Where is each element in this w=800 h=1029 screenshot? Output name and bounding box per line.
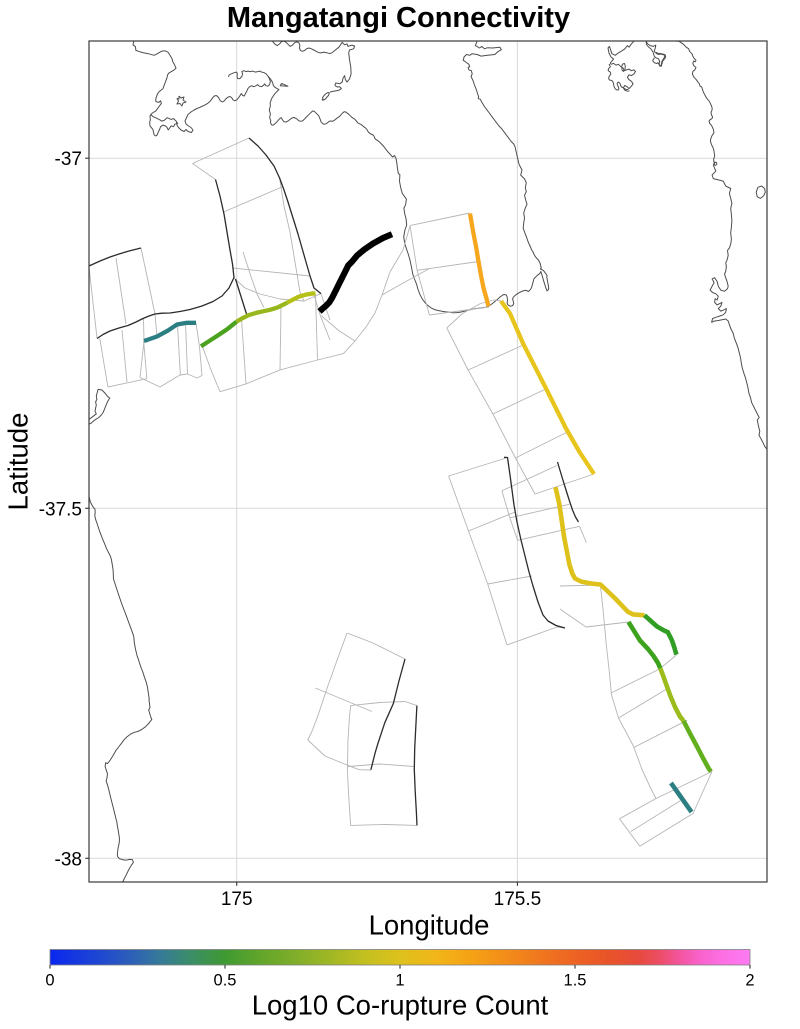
- svg-text:0: 0: [45, 972, 54, 990]
- svg-text:0.5: 0.5: [214, 972, 237, 990]
- svg-text:-38: -38: [55, 849, 82, 870]
- svg-text:-37.5: -37.5: [39, 499, 82, 520]
- svg-text:175: 175: [221, 889, 253, 910]
- svg-text:2: 2: [745, 972, 754, 990]
- svg-text:175.5: 175.5: [494, 889, 542, 910]
- svg-text:Log10 Co-rupture Count: Log10 Co-rupture Count: [252, 990, 549, 1021]
- svg-text:1.5: 1.5: [564, 972, 587, 990]
- svg-text:1: 1: [395, 972, 404, 990]
- svg-text:Longitude: Longitude: [369, 909, 490, 940]
- svg-text:Latitude: Latitude: [3, 413, 34, 511]
- svg-text:Mangatangi Connectivity: Mangatangi Connectivity: [227, 2, 570, 34]
- svg-text:-37: -37: [55, 149, 82, 170]
